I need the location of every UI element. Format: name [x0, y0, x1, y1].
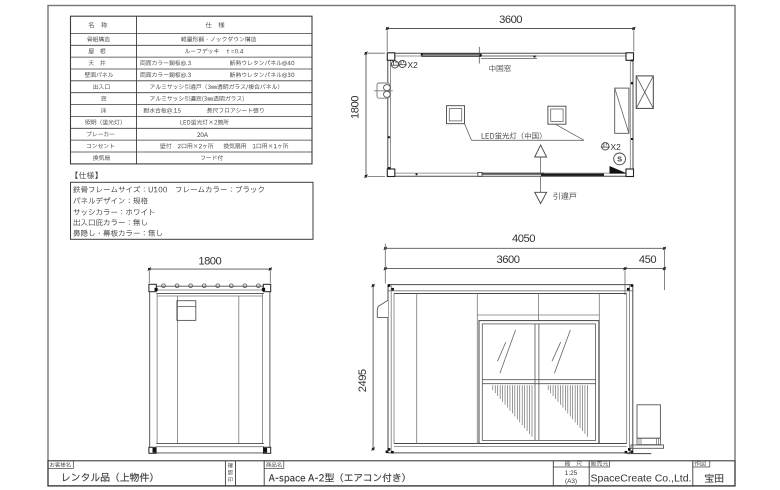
svg-text:3600: 3600 — [499, 14, 522, 26]
svg-text:2495: 2495 — [357, 369, 369, 392]
svg-text:X2: X2 — [408, 60, 419, 70]
svg-text:(A3): (A3) — [565, 478, 577, 485]
svg-text:3600: 3600 — [497, 254, 520, 266]
svg-text:20A: 20A — [197, 132, 209, 139]
svg-text:S: S — [617, 155, 622, 164]
svg-text:4050: 4050 — [512, 233, 535, 245]
svg-text:1800: 1800 — [350, 96, 362, 119]
svg-text:1800: 1800 — [198, 255, 221, 267]
svg-text:1:25: 1:25 — [565, 470, 578, 477]
svg-text:SpaceCreate Co.,Ltd.: SpaceCreate Co.,Ltd. — [591, 473, 692, 485]
svg-text:X2: X2 — [611, 142, 622, 152]
svg-text:450: 450 — [639, 254, 656, 266]
